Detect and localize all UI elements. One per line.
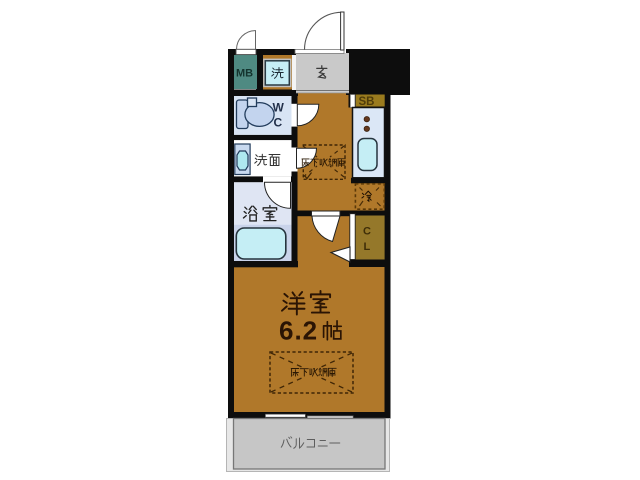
svg-text:W: W	[273, 101, 285, 115]
svg-text:L: L	[364, 241, 371, 253]
svg-text:SB: SB	[359, 96, 375, 108]
svg-text:C: C	[363, 226, 371, 238]
svg-text:6.2: 6.2	[279, 316, 318, 346]
svg-text:MB: MB	[236, 68, 253, 80]
svg-text:C: C	[274, 116, 283, 130]
